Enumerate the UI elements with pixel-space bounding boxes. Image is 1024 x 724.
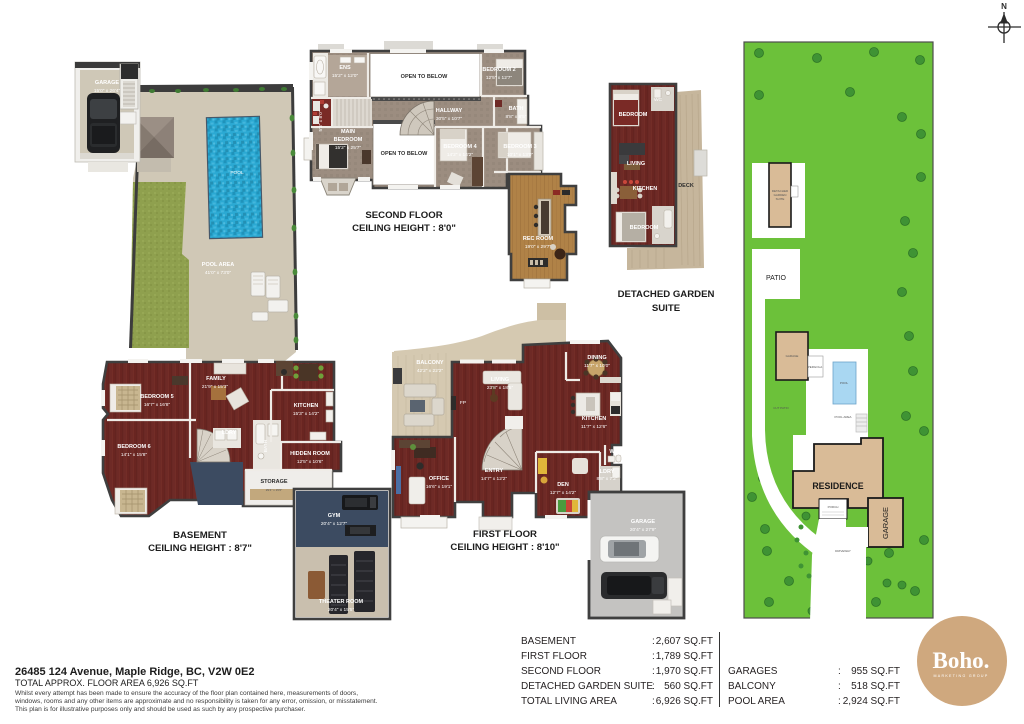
svg-text:BEDROOM 5: BEDROOM 5	[140, 394, 173, 400]
svg-text:15'2" x 12'0": 15'2" x 12'0"	[332, 73, 359, 79]
svg-text::: :	[652, 636, 655, 647]
svg-text:15'3" x 14'2": 15'3" x 14'2"	[293, 411, 320, 417]
svg-text:BEDROOM: BEDROOM	[619, 112, 648, 118]
svg-text:BATH: BATH	[263, 439, 269, 452]
svg-text:23'8" x 18'5": 23'8" x 18'5"	[487, 385, 514, 391]
svg-text:FP: FP	[460, 400, 466, 406]
svg-text:LDRY: LDRY	[222, 430, 237, 436]
svg-text:SECOND FLOOR: SECOND FLOOR	[521, 666, 601, 677]
svg-text:518 SQ.FT: 518 SQ.FT	[851, 681, 900, 692]
svg-text:26485 124 Avenue, Maple Ridge,: 26485 124 Avenue, Maple Ridge, BC, V2W 0…	[15, 666, 254, 678]
svg-text:2,607 SQ.FT: 2,607 SQ.FT	[656, 636, 713, 647]
svg-text::: :	[838, 681, 841, 692]
svg-text:42'2" x 22'2": 42'2" x 22'2"	[417, 368, 444, 374]
svg-text:KITCHEN: KITCHEN	[294, 403, 318, 409]
svg-text:N: N	[1001, 2, 1007, 11]
svg-text::: :	[838, 696, 841, 707]
svg-text:OPEN TO BELOW: OPEN TO BELOW	[401, 74, 448, 80]
svg-text:8'8" x 7'2": 8'8" x 7'2"	[597, 476, 618, 482]
svg-text:CEILING HEIGHT : 8'0": CEILING HEIGHT : 8'0"	[352, 223, 456, 234]
svg-text:REC ROOM: REC ROOM	[523, 236, 554, 242]
svg-text::: :	[838, 666, 841, 677]
svg-text:GARAGES: GARAGES	[728, 666, 778, 677]
svg-text:BALCONY: BALCONY	[416, 360, 444, 366]
svg-text:DINING: DINING	[587, 355, 606, 361]
svg-text:1,789 SQ.FT: 1,789 SQ.FT	[656, 651, 713, 662]
svg-text:CEILING HEIGHT : 8'7": CEILING HEIGHT : 8'7"	[148, 543, 252, 554]
svg-text:CEILING HEIGHT : 8'10": CEILING HEIGHT : 8'10"	[450, 542, 559, 553]
svg-text:FIRST FLOOR: FIRST FLOOR	[473, 529, 537, 540]
svg-text:15'0" x 26'4": 15'0" x 26'4"	[94, 88, 121, 94]
svg-text:PORCH: PORCH	[828, 505, 839, 509]
svg-text:PATIO: PATIO	[766, 275, 787, 282]
svg-text:WC: WC	[654, 97, 663, 103]
svg-text:WC: WC	[609, 449, 618, 455]
svg-text:SUITE: SUITE	[776, 197, 785, 201]
svg-text:SUITE: SUITE	[652, 303, 681, 314]
svg-text:MAIN: MAIN	[341, 129, 355, 135]
svg-text:TOTAL LIVING AREA: TOTAL LIVING AREA	[521, 696, 617, 707]
svg-text:14'7" x 12'2": 14'7" x 12'2"	[481, 476, 508, 482]
svg-text:OPEN TO BELOW: OPEN TO BELOW	[381, 151, 428, 157]
svg-text:30'5" x 10'7": 30'5" x 10'7"	[436, 116, 463, 122]
svg-text:19'0" x 29'7": 19'0" x 29'7"	[525, 244, 552, 250]
svg-text:LDRY: LDRY	[600, 469, 615, 475]
svg-text:POOL AREA: POOL AREA	[834, 415, 851, 419]
svg-text:Boho.: Boho.	[933, 648, 990, 673]
svg-text:16'6" x 19'1": 16'6" x 19'1"	[426, 484, 453, 490]
svg-text:16'7" x 16'8": 16'7" x 16'8"	[144, 402, 171, 408]
svg-text:11'7" x 12'6": 11'7" x 12'6"	[581, 424, 607, 430]
svg-text:ENS: ENS	[339, 65, 351, 71]
svg-text:5'3" x 8'0": 5'3" x 8'0"	[318, 110, 324, 131]
svg-text:POOL AREA: POOL AREA	[202, 262, 234, 268]
svg-text:RESIDENCE: RESIDENCE	[812, 481, 863, 491]
svg-text:14'2" x 14'2": 14'2" x 14'2"	[447, 152, 474, 158]
svg-text:955 SQ.FT: 955 SQ.FT	[851, 666, 900, 677]
svg-text:BEDROOM 4: BEDROOM 4	[443, 144, 477, 150]
svg-text:BEDROOM 6: BEDROOM 6	[117, 444, 150, 450]
svg-text:BEDROOM: BEDROOM	[630, 225, 659, 231]
svg-text:DETACHED GARDEN SUITE: DETACHED GARDEN SUITE	[521, 681, 653, 692]
svg-text:29'4" x 15'6": 29'4" x 15'6"	[266, 488, 282, 492]
svg-text:FAMILY: FAMILY	[206, 376, 226, 382]
svg-text:DECK: DECK	[678, 183, 694, 189]
svg-text:TOTAL APPROX. FLOOR AREA 6,926: TOTAL APPROX. FLOOR AREA 6,926 SQ.FT	[15, 678, 199, 688]
svg-text:1,970 SQ.FT: 1,970 SQ.FT	[656, 666, 713, 677]
svg-text:560 SQ.FT: 560 SQ.FT	[664, 681, 713, 692]
svg-text:GYM: GYM	[328, 513, 341, 519]
svg-text:SECOND FLOOR: SECOND FLOOR	[365, 210, 442, 221]
svg-text:KITCHEN: KITCHEN	[633, 186, 657, 192]
svg-text:POOL AREA: POOL AREA	[728, 696, 785, 707]
svg-text:PERGOLA: PERGOLA	[808, 365, 823, 369]
svg-text:8'8" x 8'5": 8'8" x 8'5"	[506, 114, 527, 120]
svg-text:BEDROOM 3: BEDROOM 3	[503, 144, 536, 150]
svg-text:BEDROOM: BEDROOM	[334, 137, 363, 143]
svg-text:GARAGE: GARAGE	[786, 354, 799, 358]
svg-text:14'1" x 15'8": 14'1" x 15'8"	[121, 452, 148, 458]
svg-text:This plan is for illustrative: This plan is for illustrative purposes o…	[15, 706, 305, 713]
svg-text:MARKETING GROUP: MARKETING GROUP	[933, 674, 988, 678]
svg-text:10'1" x 13'0": 10'1" x 13'0"	[507, 152, 534, 158]
svg-text::: :	[652, 681, 655, 692]
svg-text:LIVING: LIVING	[491, 377, 509, 383]
svg-text:6,926 SQ.FT: 6,926 SQ.FT	[656, 696, 713, 707]
svg-text:KITCHEN: KITCHEN	[582, 416, 606, 422]
svg-text:20'4" x 15'5": 20'4" x 15'5"	[328, 607, 355, 613]
svg-text:FIRST FLOOR: FIRST FLOOR	[521, 651, 587, 662]
svg-text:STORAGE: STORAGE	[260, 479, 287, 485]
svg-text:Whilst every attempt has been: Whilst every attempt has been made to en…	[15, 690, 358, 697]
svg-text:2,924 SQ.FT: 2,924 SQ.FT	[843, 696, 900, 707]
svg-text:11'7" x 10'0": 11'7" x 10'0"	[584, 363, 610, 369]
svg-text:DRIVEWAY: DRIVEWAY	[835, 549, 851, 553]
svg-text:windows, rooms and any other i: windows, rooms and any other items are a…	[14, 698, 378, 705]
svg-text:DETACHED GARDEN: DETACHED GARDEN	[618, 289, 715, 300]
svg-text:BEDROOM 2: BEDROOM 2	[482, 67, 515, 73]
svg-text:ENTRY: ENTRY	[485, 468, 504, 474]
svg-text:21'9" x 15'3": 21'9" x 15'3"	[202, 384, 229, 390]
svg-text:20'4" x 12'7": 20'4" x 12'7"	[321, 521, 348, 527]
svg-text:LIVING: LIVING	[627, 161, 645, 167]
svg-text:41'0" x 73'0": 41'0" x 73'0"	[205, 270, 232, 276]
svg-text:CUT PATIO: CUT PATIO	[773, 406, 789, 410]
svg-text:12'5" x 12'7": 12'5" x 12'7"	[486, 75, 513, 81]
svg-text:BASEMENT: BASEMENT	[173, 530, 227, 541]
svg-text:THEATER ROOM: THEATER ROOM	[319, 599, 364, 605]
svg-text:HIDDEN ROOM: HIDDEN ROOM	[290, 451, 330, 457]
svg-text:GARAGE: GARAGE	[881, 507, 890, 539]
svg-text:GARAGE: GARAGE	[95, 80, 119, 86]
svg-text:12'5" x 10'6": 12'5" x 10'6"	[297, 459, 324, 465]
svg-text::: :	[652, 651, 655, 662]
svg-text:POOL: POOL	[840, 381, 849, 385]
svg-text:OFFICE: OFFICE	[429, 476, 449, 482]
svg-text:BALCONY: BALCONY	[728, 681, 776, 692]
svg-text:15'2" x 25'7": 15'2" x 25'7"	[335, 145, 362, 151]
svg-text:HALLWAY: HALLWAY	[436, 108, 463, 114]
svg-text:BASEMENT: BASEMENT	[521, 636, 576, 647]
svg-text:BATH: BATH	[509, 106, 524, 112]
svg-text:POOL: POOL	[230, 170, 244, 176]
svg-text:DEN: DEN	[557, 482, 569, 488]
svg-text:GARAGE: GARAGE	[631, 519, 655, 525]
svg-text::: :	[652, 696, 655, 707]
svg-text::: :	[652, 666, 655, 677]
svg-text:20'4" x 27'9": 20'4" x 27'9"	[630, 527, 657, 533]
svg-text:12'7" x 14'2": 12'7" x 14'2"	[550, 490, 577, 496]
